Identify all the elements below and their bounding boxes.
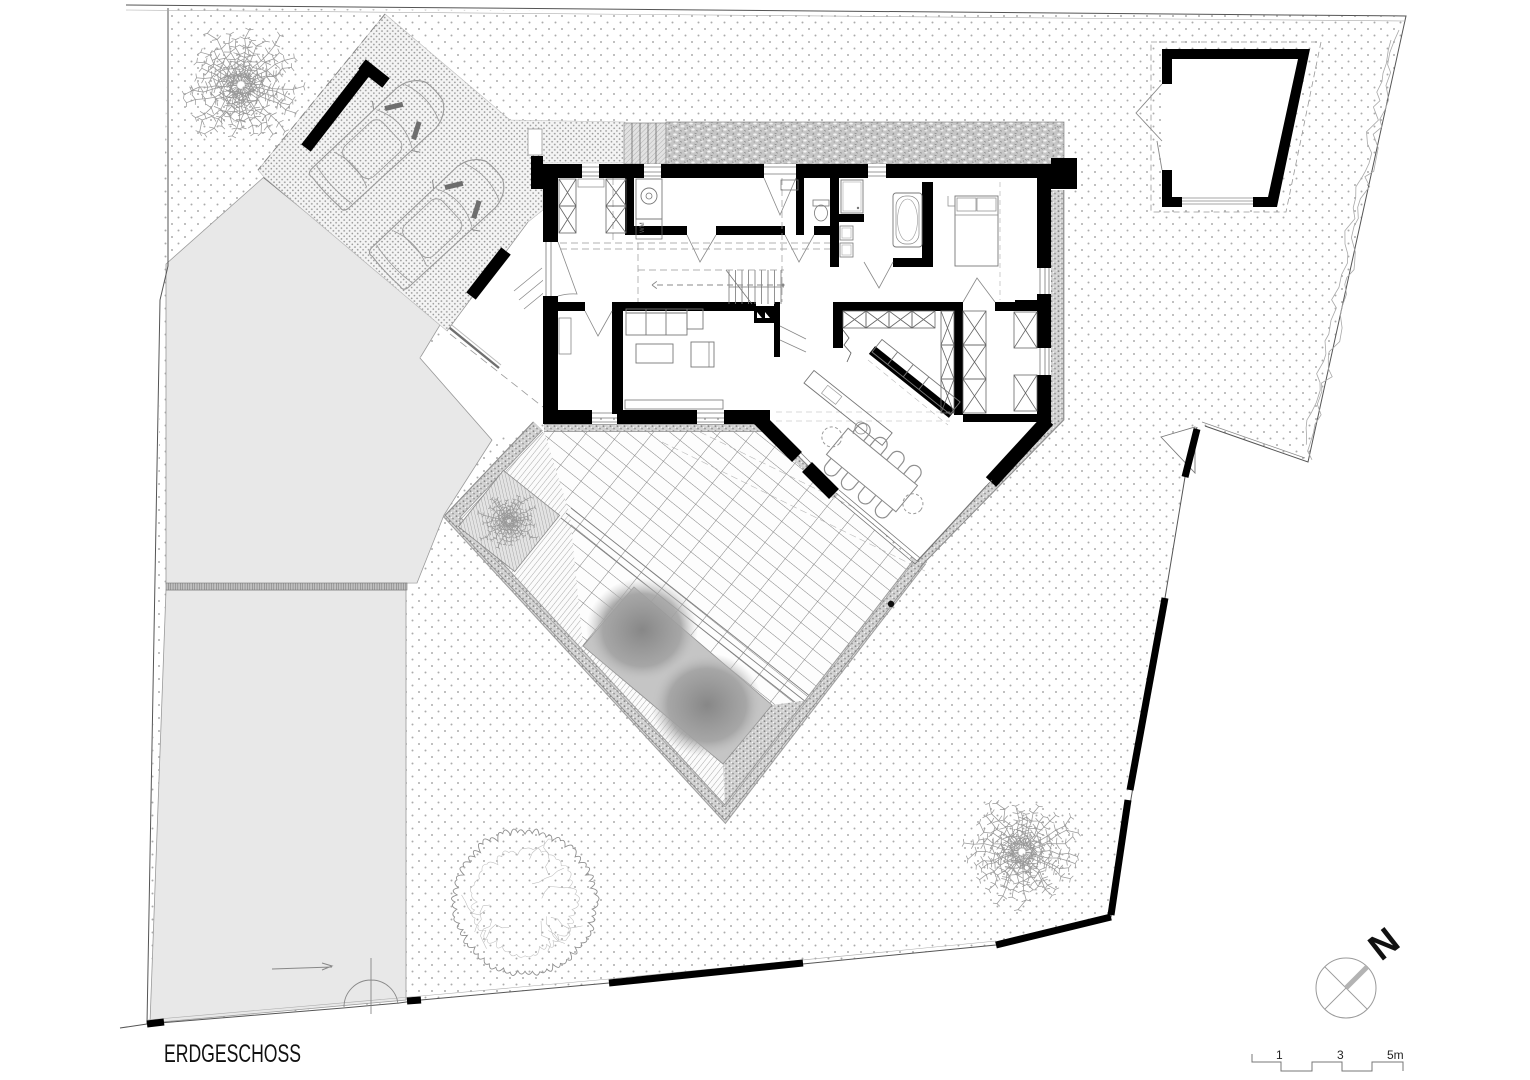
svg-text:ERDGESCHOSS: ERDGESCHOSS <box>164 1040 301 1068</box>
svg-text:3: 3 <box>1337 1048 1344 1062</box>
svg-text:WM: WM <box>640 222 646 233</box>
svg-text:1: 1 <box>1276 1048 1283 1062</box>
svg-text:5m: 5m <box>1387 1048 1404 1062</box>
